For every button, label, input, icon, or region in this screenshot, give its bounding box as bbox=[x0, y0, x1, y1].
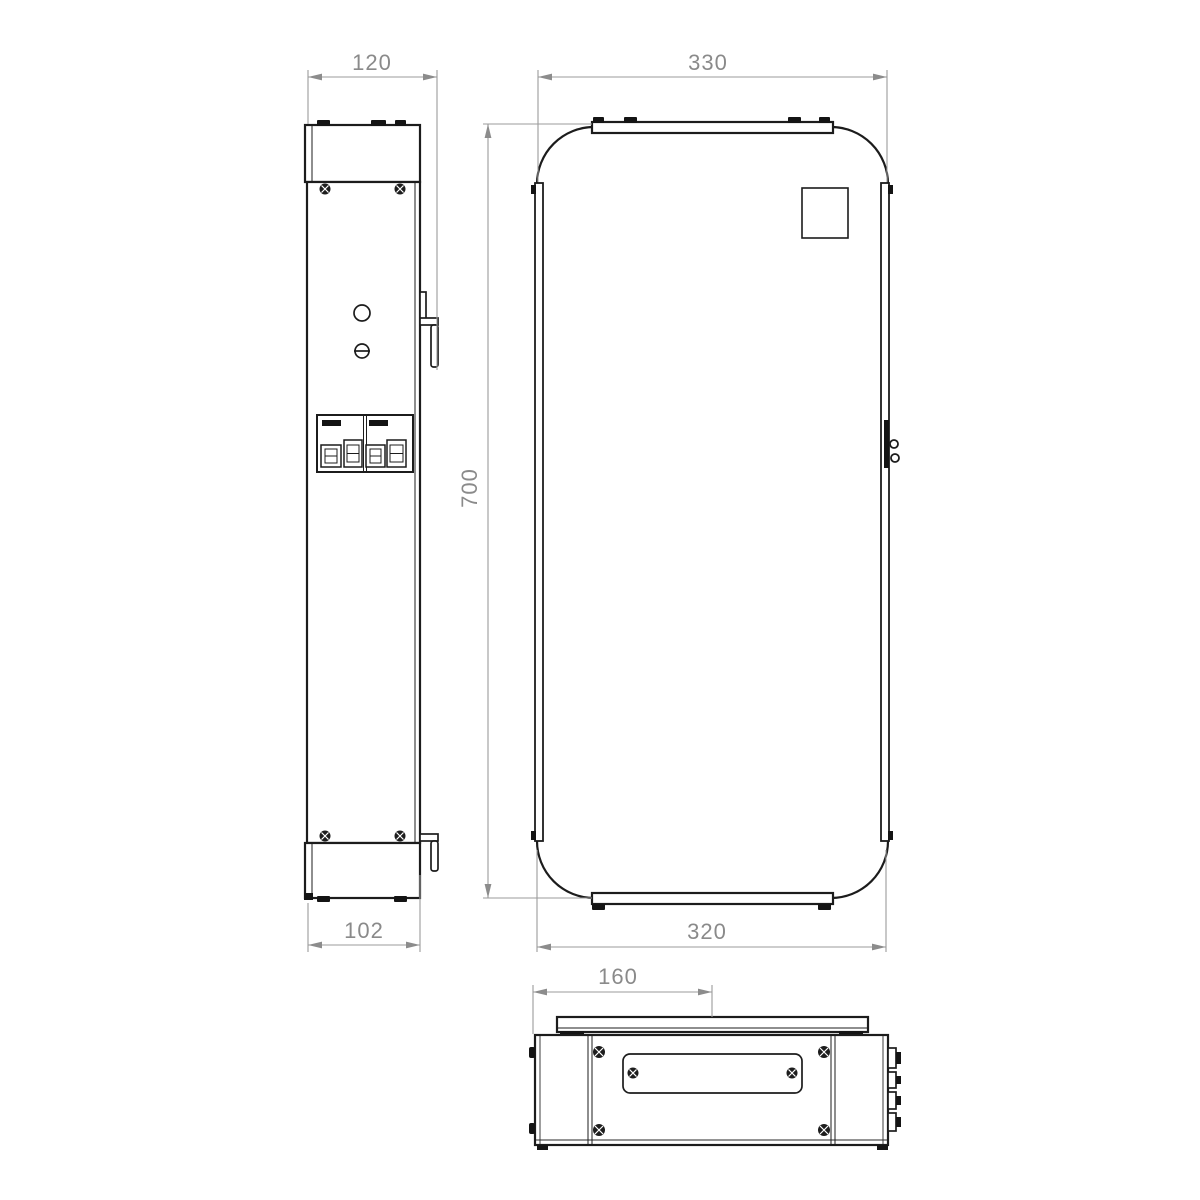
arrow-left bbox=[308, 74, 322, 81]
bottom-left-pin bbox=[529, 1123, 535, 1134]
arrow-down bbox=[485, 884, 492, 898]
dim-label-side-depth-overall: 120 bbox=[352, 50, 392, 75]
front-top-bump bbox=[624, 117, 637, 123]
bottom-view bbox=[529, 1017, 901, 1150]
arrow-left bbox=[538, 74, 552, 81]
side-top-bump bbox=[371, 120, 386, 126]
front-label-plate bbox=[802, 188, 848, 238]
front-view bbox=[531, 117, 899, 910]
bottom-foot bbox=[537, 1145, 548, 1150]
side-screw-bottom-right bbox=[395, 831, 406, 842]
bottom-cable-gland bbox=[888, 1113, 901, 1131]
bottom-panel-screw bbox=[818, 1046, 830, 1058]
technical-drawing-page: 120 330 700 102 320 bbox=[0, 0, 1200, 1200]
dimension-drawing: 120 330 700 102 320 bbox=[0, 0, 1200, 1200]
arrow-left bbox=[308, 942, 322, 949]
front-right-rail-pin bbox=[888, 185, 893, 194]
arrow-left bbox=[537, 944, 551, 951]
side-mount-bracket-bottom bbox=[420, 834, 438, 871]
breaker-toggle bbox=[322, 420, 341, 426]
front-latch bbox=[884, 420, 899, 468]
front-left-rail bbox=[535, 183, 543, 841]
bottom-slot-screw bbox=[787, 1068, 798, 1079]
breaker-terminal bbox=[387, 440, 406, 467]
front-left-rail-pin bbox=[531, 831, 536, 840]
side-view bbox=[304, 120, 438, 902]
breaker-terminal bbox=[344, 440, 362, 467]
arrow-left bbox=[533, 989, 547, 996]
dim-label-front-width-bottom: 320 bbox=[687, 919, 727, 944]
dimension-330: 330 bbox=[538, 50, 887, 182]
dim-label-bottom-mount-offset: 160 bbox=[598, 964, 638, 989]
bottom-slot-screw bbox=[628, 1068, 639, 1079]
front-top-bump bbox=[788, 117, 801, 123]
side-bottom-cap bbox=[305, 843, 420, 898]
bottom-panel-screw bbox=[593, 1124, 605, 1136]
dim-label-front-height: 700 bbox=[457, 468, 482, 508]
front-left-rail-pin bbox=[531, 185, 536, 194]
dim-label-front-width-top: 330 bbox=[688, 50, 728, 75]
breaker-terminal bbox=[366, 445, 385, 467]
arrow-right bbox=[423, 74, 437, 81]
front-top-strip bbox=[592, 122, 833, 133]
arrow-right bbox=[406, 942, 420, 949]
side-top-cap bbox=[305, 125, 420, 182]
bottom-cable-gland bbox=[888, 1048, 901, 1068]
dimension-700: 700 bbox=[457, 124, 592, 898]
side-body bbox=[307, 182, 420, 843]
front-bottom-bump bbox=[818, 904, 831, 910]
bottom-slot-cover bbox=[623, 1054, 802, 1093]
front-right-rail-pin bbox=[888, 831, 893, 840]
side-foot bbox=[394, 896, 407, 902]
side-screw-bottom-left bbox=[320, 831, 331, 842]
arrow-right bbox=[873, 74, 887, 81]
front-top-bump bbox=[593, 117, 604, 123]
bottom-mount-strip bbox=[557, 1017, 868, 1032]
side-foot bbox=[317, 896, 330, 902]
breaker-toggle bbox=[369, 420, 388, 426]
arrow-right bbox=[872, 944, 886, 951]
side-screw-top-left bbox=[320, 184, 331, 195]
arrow-up bbox=[485, 124, 492, 138]
breaker-terminal bbox=[321, 445, 341, 467]
front-top-bump bbox=[819, 117, 830, 123]
bottom-left-pin bbox=[529, 1047, 535, 1058]
side-top-bump bbox=[317, 120, 330, 126]
side-bottom-step bbox=[304, 893, 313, 900]
bottom-cable-gland bbox=[888, 1092, 901, 1109]
front-right-rail bbox=[881, 183, 889, 841]
front-bottom-bump bbox=[592, 904, 605, 910]
side-screw-top-right bbox=[395, 184, 406, 195]
bottom-panel-screw bbox=[818, 1124, 830, 1136]
bottom-foot bbox=[877, 1145, 888, 1150]
bottom-cable-gland bbox=[888, 1072, 901, 1088]
arrow-right bbox=[698, 989, 712, 996]
front-outline bbox=[537, 127, 888, 898]
side-mount-bracket-top bbox=[420, 292, 438, 367]
dim-label-side-depth-body: 102 bbox=[344, 918, 384, 943]
side-breaker-block bbox=[317, 415, 413, 472]
bottom-panel-screw bbox=[593, 1046, 605, 1058]
side-top-bump bbox=[395, 120, 406, 126]
front-bottom-strip bbox=[592, 893, 833, 904]
